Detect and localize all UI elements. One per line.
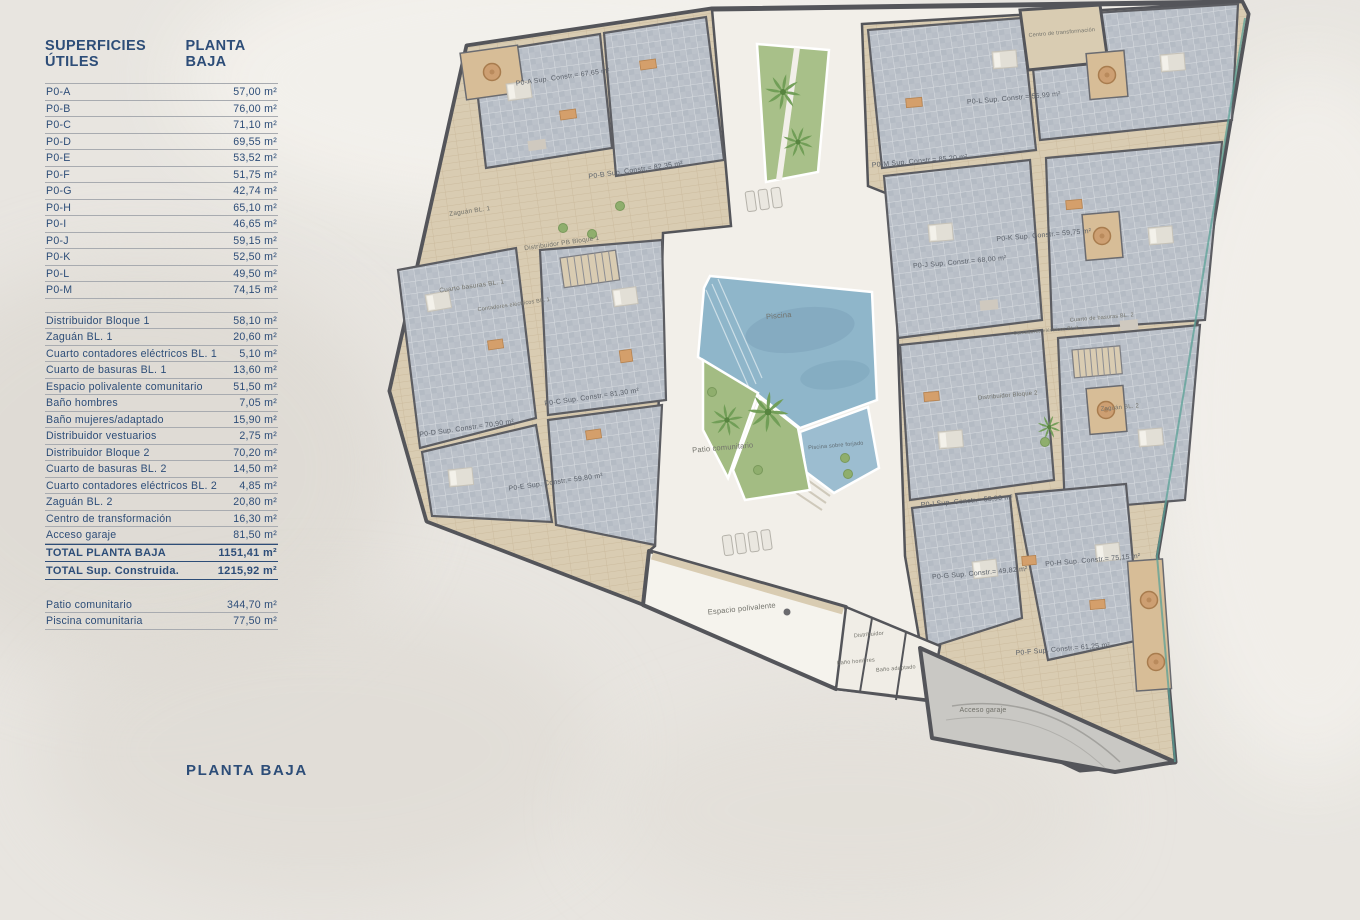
room-label-acceso-garaje: Acceso garaje <box>960 707 1007 714</box>
floor-plan: P0-A Sup. Constr.= 67,65 m² P0-B Sup. Co… <box>0 0 1360 850</box>
stairs-block2 <box>1072 346 1122 378</box>
page: SUPERFICIES ÚTILES PLANTA BAJA P0-A 57,0… <box>0 0 1360 850</box>
